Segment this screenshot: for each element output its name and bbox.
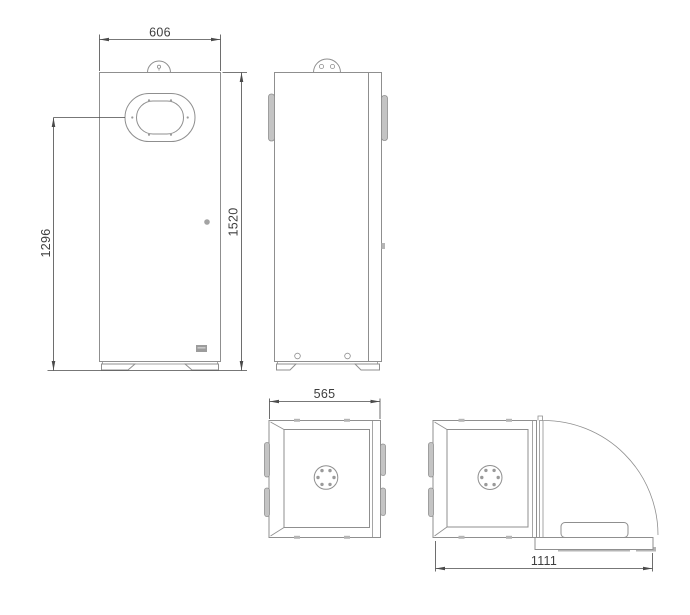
drawing-svg: 606 1520 1296 — [0, 0, 690, 615]
open-door-hinge-strip — [538, 416, 543, 538]
side-body-outline — [275, 73, 382, 362]
dim-label-height: 1520 — [227, 207, 241, 236]
top-tab-left-2 — [265, 488, 270, 517]
top-view-door-closed — [265, 419, 386, 539]
side-lifting-lug — [314, 59, 341, 73]
open-tab-left-2 — [429, 488, 434, 517]
dimension-width-606: 606 — [100, 26, 221, 72]
dim-label-inlet-height: 1296 — [39, 228, 53, 257]
side-foot-right — [355, 364, 380, 370]
top-view-door-open — [429, 416, 659, 552]
front-body-outline — [100, 73, 221, 362]
front-lifting-lug — [148, 61, 171, 73]
top-tab-left-1 — [265, 443, 270, 478]
side-hinge-right — [382, 96, 388, 141]
top-tab-right-2 — [381, 488, 386, 516]
door-handle — [561, 523, 628, 538]
dimension-depth-565: 565 — [270, 387, 381, 419]
front-view — [100, 61, 221, 370]
door-swing-arc — [544, 421, 659, 536]
front-foot-left — [102, 364, 136, 370]
front-brand-badge — [196, 345, 207, 352]
side-hinge-left — [269, 94, 275, 141]
dim-label-width: 606 — [149, 26, 171, 40]
open-flange — [478, 466, 502, 490]
technical-drawing-canvas: 606 1520 1296 — [0, 0, 690, 615]
side-latch-mark — [382, 243, 386, 249]
dim-label-door-open: 1111 — [531, 554, 557, 568]
door-open-strip — [535, 538, 653, 550]
open-tab-left-1 — [429, 443, 434, 478]
side-foot-left — [277, 364, 297, 370]
top-tab-right-1 — [381, 444, 386, 476]
top-flange — [314, 466, 338, 490]
side-view — [269, 59, 388, 370]
front-door-knob — [204, 219, 210, 225]
dim-label-depth: 565 — [314, 387, 336, 401]
open-door-panel — [535, 523, 656, 552]
front-foot-right — [185, 364, 219, 370]
